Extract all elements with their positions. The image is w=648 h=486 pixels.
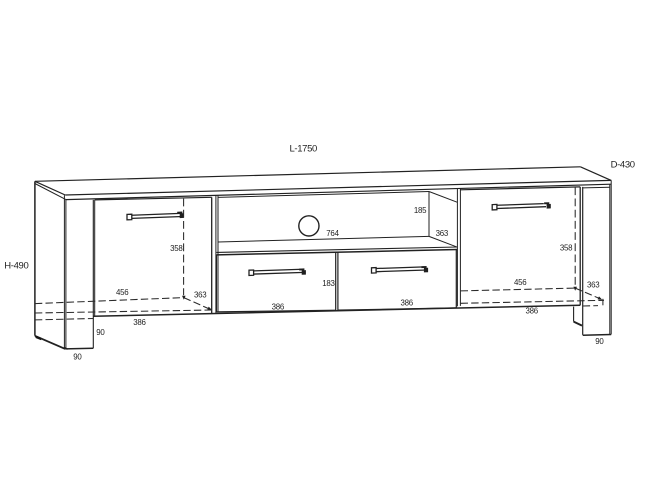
svg-text:386: 386 xyxy=(272,303,285,312)
svg-text:358: 358 xyxy=(170,244,183,253)
svg-text:363: 363 xyxy=(436,229,449,238)
svg-text:185: 185 xyxy=(414,206,427,215)
svg-text:456: 456 xyxy=(514,278,527,287)
svg-text:386: 386 xyxy=(133,318,146,327)
svg-text:L-1750: L-1750 xyxy=(290,143,318,154)
svg-text:90: 90 xyxy=(73,352,82,361)
svg-text:386: 386 xyxy=(401,299,414,308)
svg-text:183: 183 xyxy=(322,279,335,288)
svg-text:90: 90 xyxy=(96,328,105,337)
svg-text:90: 90 xyxy=(595,337,604,346)
svg-text:764: 764 xyxy=(326,229,339,238)
svg-text:358: 358 xyxy=(560,244,573,253)
svg-text:363: 363 xyxy=(587,280,600,289)
svg-text:456: 456 xyxy=(116,288,129,297)
svg-text:H-490: H-490 xyxy=(4,260,28,271)
svg-text:386: 386 xyxy=(526,306,539,315)
svg-text:363: 363 xyxy=(194,291,207,300)
svg-text:D-430: D-430 xyxy=(611,159,635,170)
